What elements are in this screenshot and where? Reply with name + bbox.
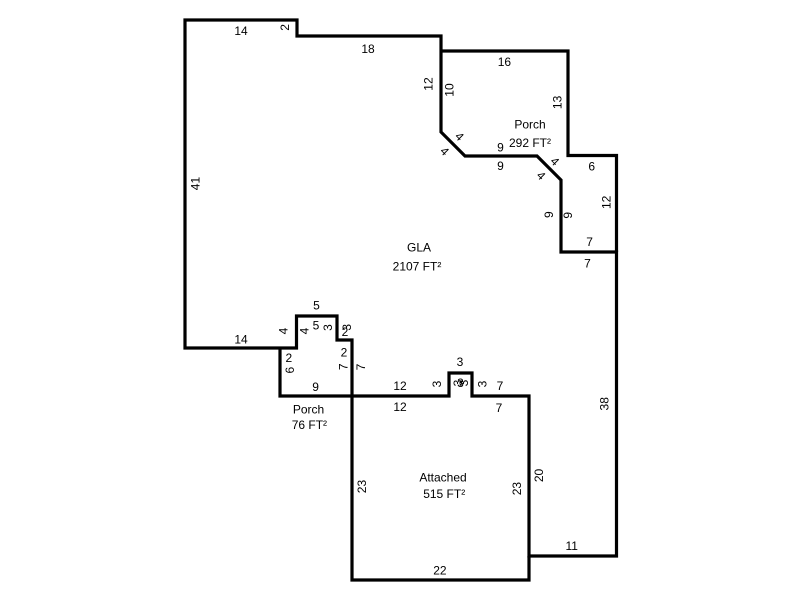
svg-text:3: 3 [476,380,490,387]
svg-text:7: 7 [497,379,504,393]
svg-text:10: 10 [442,83,456,97]
svg-text:14: 14 [234,333,248,347]
svg-text:23: 23 [510,482,524,496]
svg-text:9: 9 [497,141,504,155]
svg-text:23: 23 [355,480,369,494]
svg-text:3: 3 [321,324,335,331]
svg-text:2: 2 [341,346,348,360]
svg-text:14: 14 [234,24,248,38]
svg-text:6: 6 [283,366,297,373]
svg-text:Porch: Porch [293,403,324,417]
svg-text:GLA: GLA [407,241,431,255]
svg-text:Attached: Attached [419,470,466,484]
svg-text:7: 7 [496,401,503,415]
svg-text:22: 22 [433,563,447,577]
svg-text:12: 12 [393,379,407,393]
svg-text:3: 3 [457,379,471,386]
svg-text:9: 9 [542,211,556,218]
svg-text:11: 11 [565,539,578,553]
svg-text:18: 18 [361,42,375,56]
svg-text:41: 41 [188,177,202,191]
svg-text:20: 20 [532,469,546,483]
svg-text:Porch: Porch [514,118,545,132]
svg-text:76 FT²: 76 FT² [292,418,327,432]
svg-text:3: 3 [430,380,444,387]
svg-text:5: 5 [313,299,320,313]
svg-text:4: 4 [277,327,291,334]
svg-text:12: 12 [422,77,436,91]
svg-text:7: 7 [584,257,591,271]
svg-text:12: 12 [600,195,614,209]
svg-text:7: 7 [354,363,368,370]
svg-text:9: 9 [497,159,504,173]
svg-text:7: 7 [337,363,351,370]
svg-text:16: 16 [498,55,512,69]
svg-text:2: 2 [285,351,292,365]
svg-text:2: 2 [278,24,292,31]
svg-text:9: 9 [312,380,319,394]
svg-text:7: 7 [586,235,593,249]
svg-text:9: 9 [561,212,575,219]
svg-text:38: 38 [598,397,612,411]
svg-text:3: 3 [457,355,464,369]
svg-text:515 FT²: 515 FT² [423,487,465,501]
svg-text:5: 5 [313,319,320,333]
svg-text:292 FT²: 292 FT² [509,136,551,150]
svg-text:6: 6 [588,160,595,174]
svg-text:13: 13 [551,95,565,109]
svg-text:4: 4 [298,327,312,334]
svg-text:3: 3 [340,324,354,331]
svg-text:12: 12 [393,400,407,414]
svg-text:2107 FT²: 2107 FT² [393,260,442,274]
